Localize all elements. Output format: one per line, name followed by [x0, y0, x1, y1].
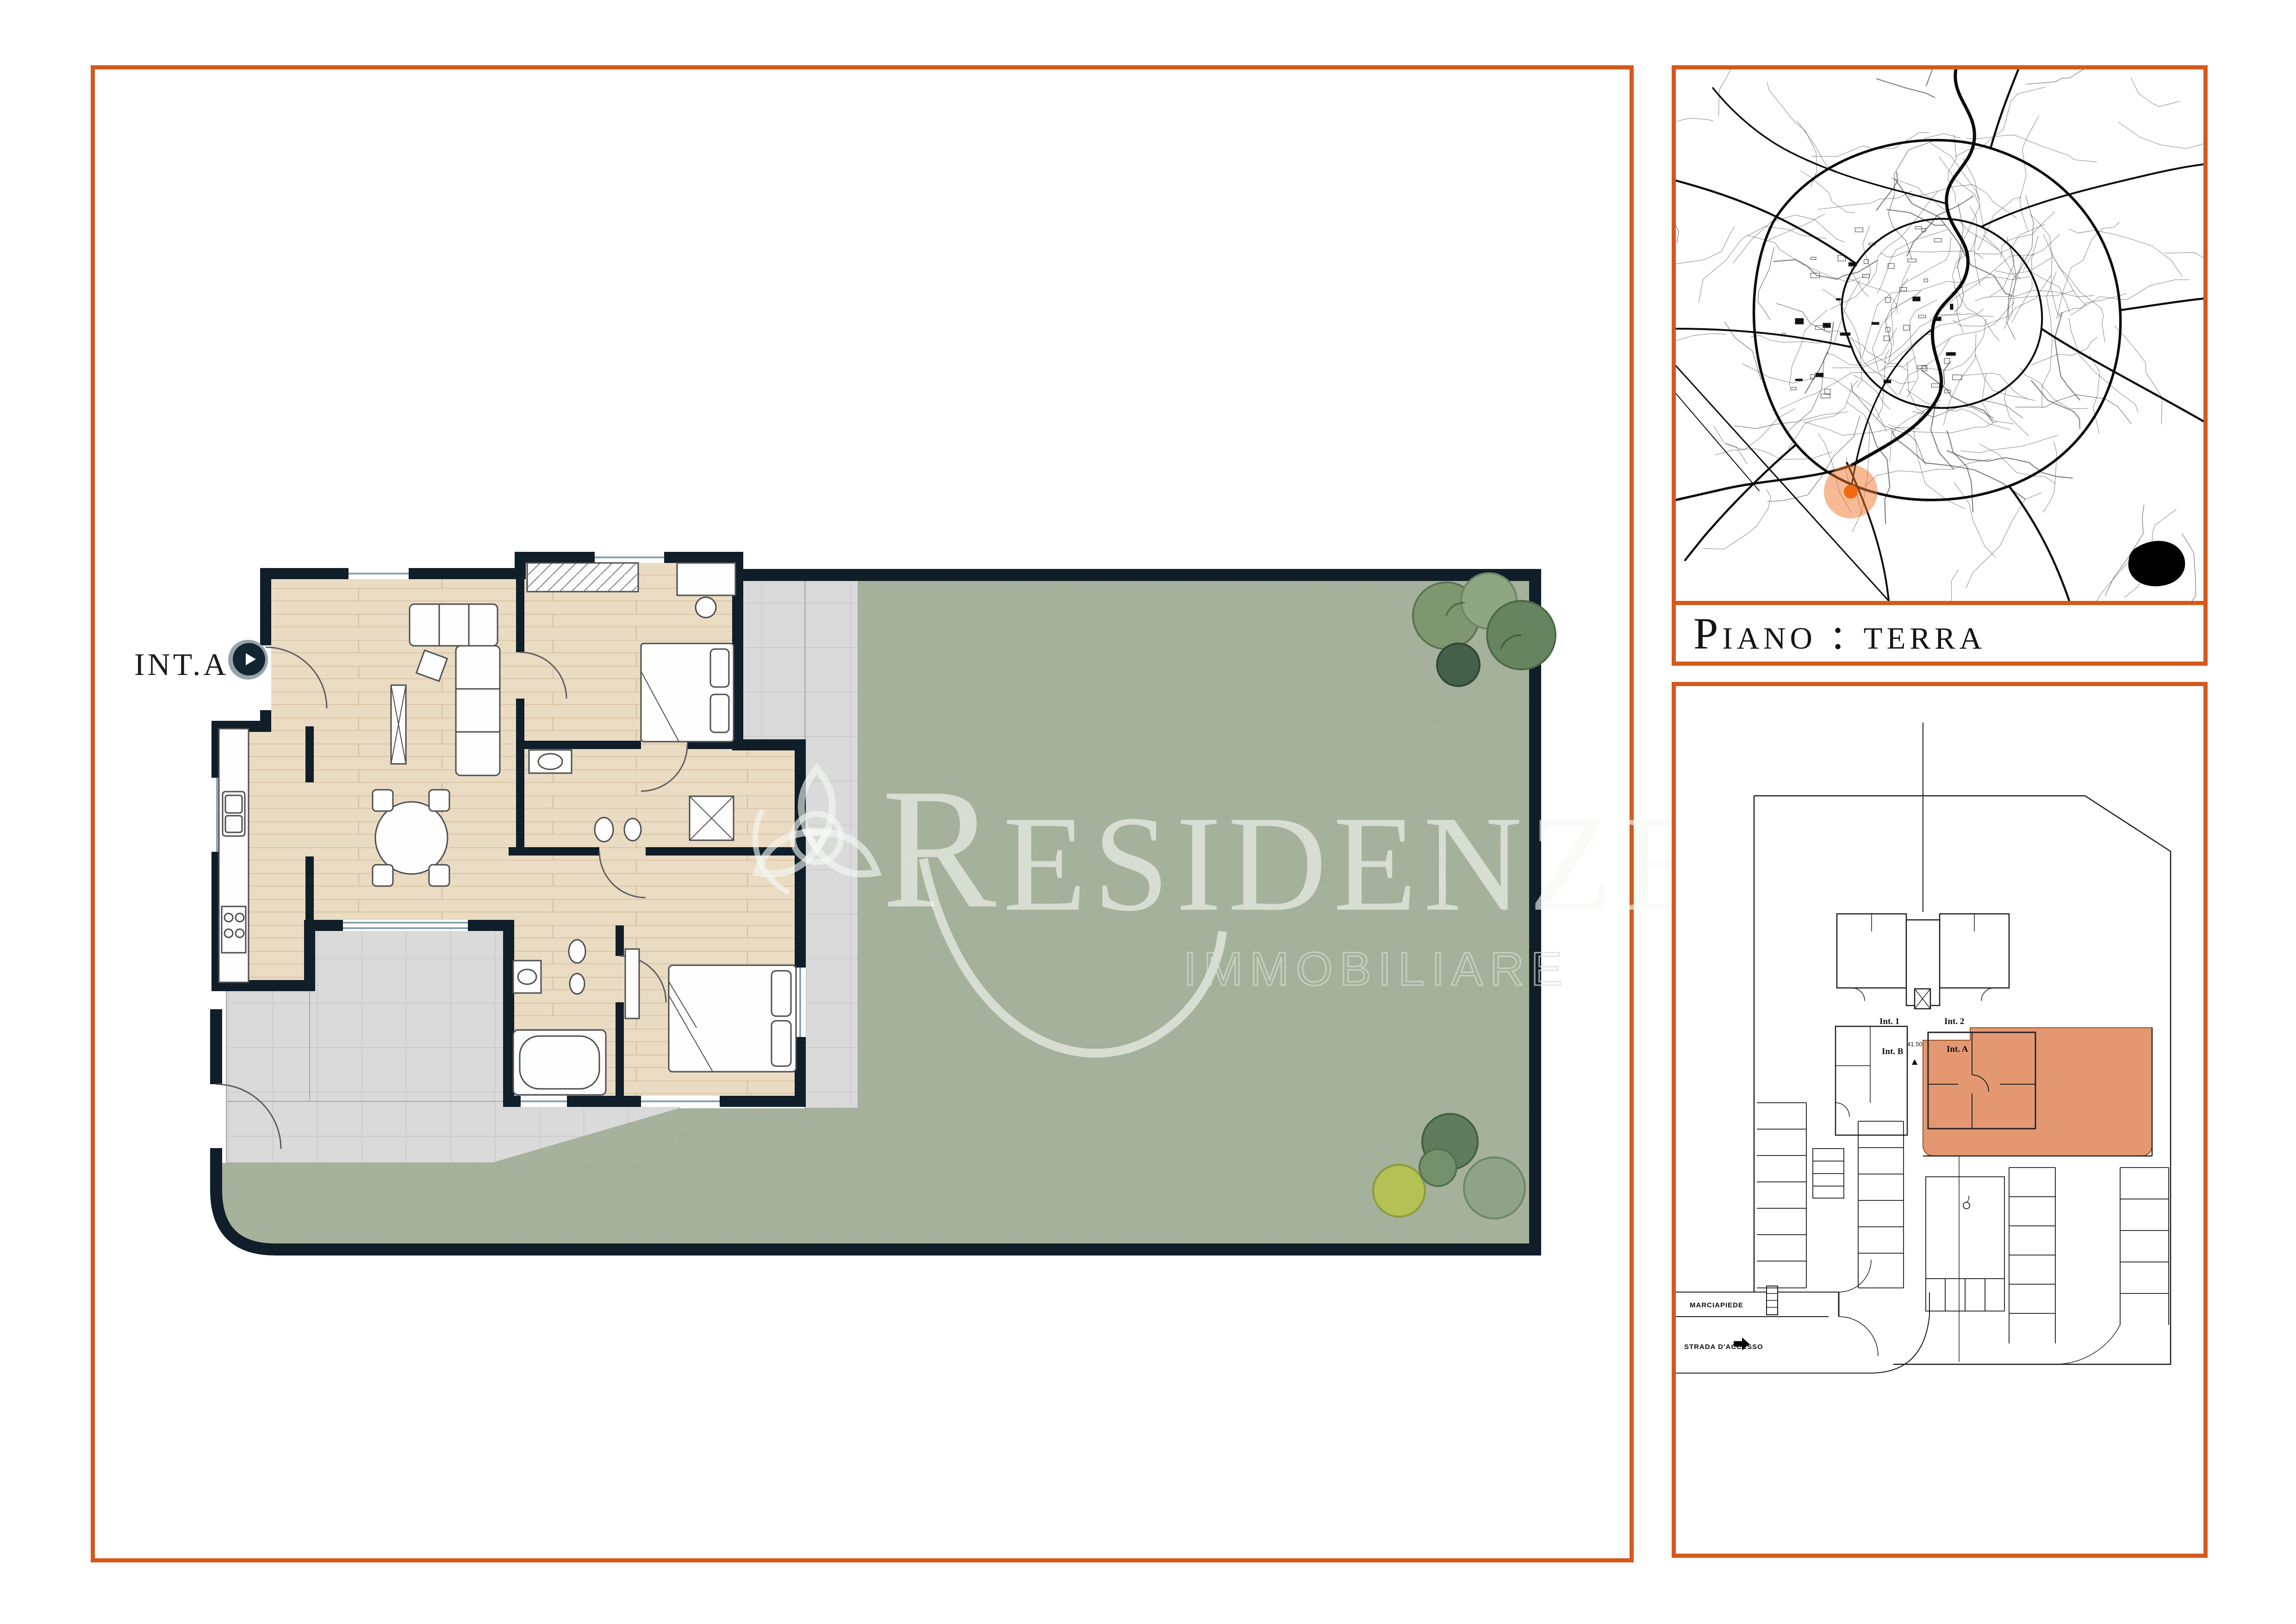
wc — [595, 818, 613, 842]
unit-b-outline — [1836, 1026, 1907, 1135]
bidet — [570, 974, 585, 994]
sidewalk-label: MARCIAPIEDE — [1690, 1301, 1743, 1309]
unit-label: INT.A — [134, 646, 229, 683]
location-marker[interactable] — [1824, 465, 1878, 518]
unit-b-label: Int. B — [1882, 1047, 1904, 1056]
floor-label: Piano : terra — [1676, 608, 1986, 659]
desk — [677, 563, 735, 595]
wc — [569, 940, 585, 963]
floor-plan-panel: INT.A R ESIDENZE IMMOBILIARE — [91, 65, 1634, 1562]
dining-table — [375, 802, 448, 874]
bidet — [624, 818, 641, 841]
courtyard-block — [1926, 1177, 2004, 1279]
site-plan-drawing: Int. 1 Int. 2 Int. A Int. B 41.50 MARCIA… — [1676, 686, 2203, 1554]
wardrobe — [527, 563, 638, 592]
chair — [373, 865, 393, 886]
play-icon — [233, 643, 265, 675]
desk-chair — [696, 597, 716, 618]
sofa — [410, 604, 498, 646]
access-roads — [1676, 1260, 1929, 1373]
river — [1852, 69, 1974, 465]
arrow-up-icon — [1912, 1059, 1917, 1065]
floor-banner: Piano : terra — [1672, 605, 2208, 666]
city-map — [1676, 69, 2203, 601]
unit-2-label: Int. 2 — [1944, 1017, 1964, 1026]
drain-symbol — [1963, 1202, 1970, 1209]
site-plan-panel: Int. 1 Int. 2 Int. A Int. B 41.50 MARCIA… — [1672, 682, 2208, 1558]
elevation-label: 41.50 — [1907, 1041, 1923, 1048]
chair — [429, 865, 449, 886]
unit-a-label: Int. A — [1947, 1044, 1968, 1054]
chair — [429, 790, 449, 811]
lake-shape — [2128, 541, 2185, 586]
chair — [373, 790, 393, 811]
virtual-tour-button[interactable] — [228, 640, 268, 680]
floor-plan-drawing — [95, 69, 1630, 1558]
access-road-label: STRADA D'ACCESSO — [1684, 1343, 1763, 1351]
city-map-panel — [1672, 65, 2208, 605]
brochure-page: { "page": { "background": "#FFFFFF", "ty… — [0, 0, 2296, 1624]
tv-cabinet — [625, 949, 639, 1018]
unit-1-label: Int. 1 — [1879, 1017, 1899, 1026]
